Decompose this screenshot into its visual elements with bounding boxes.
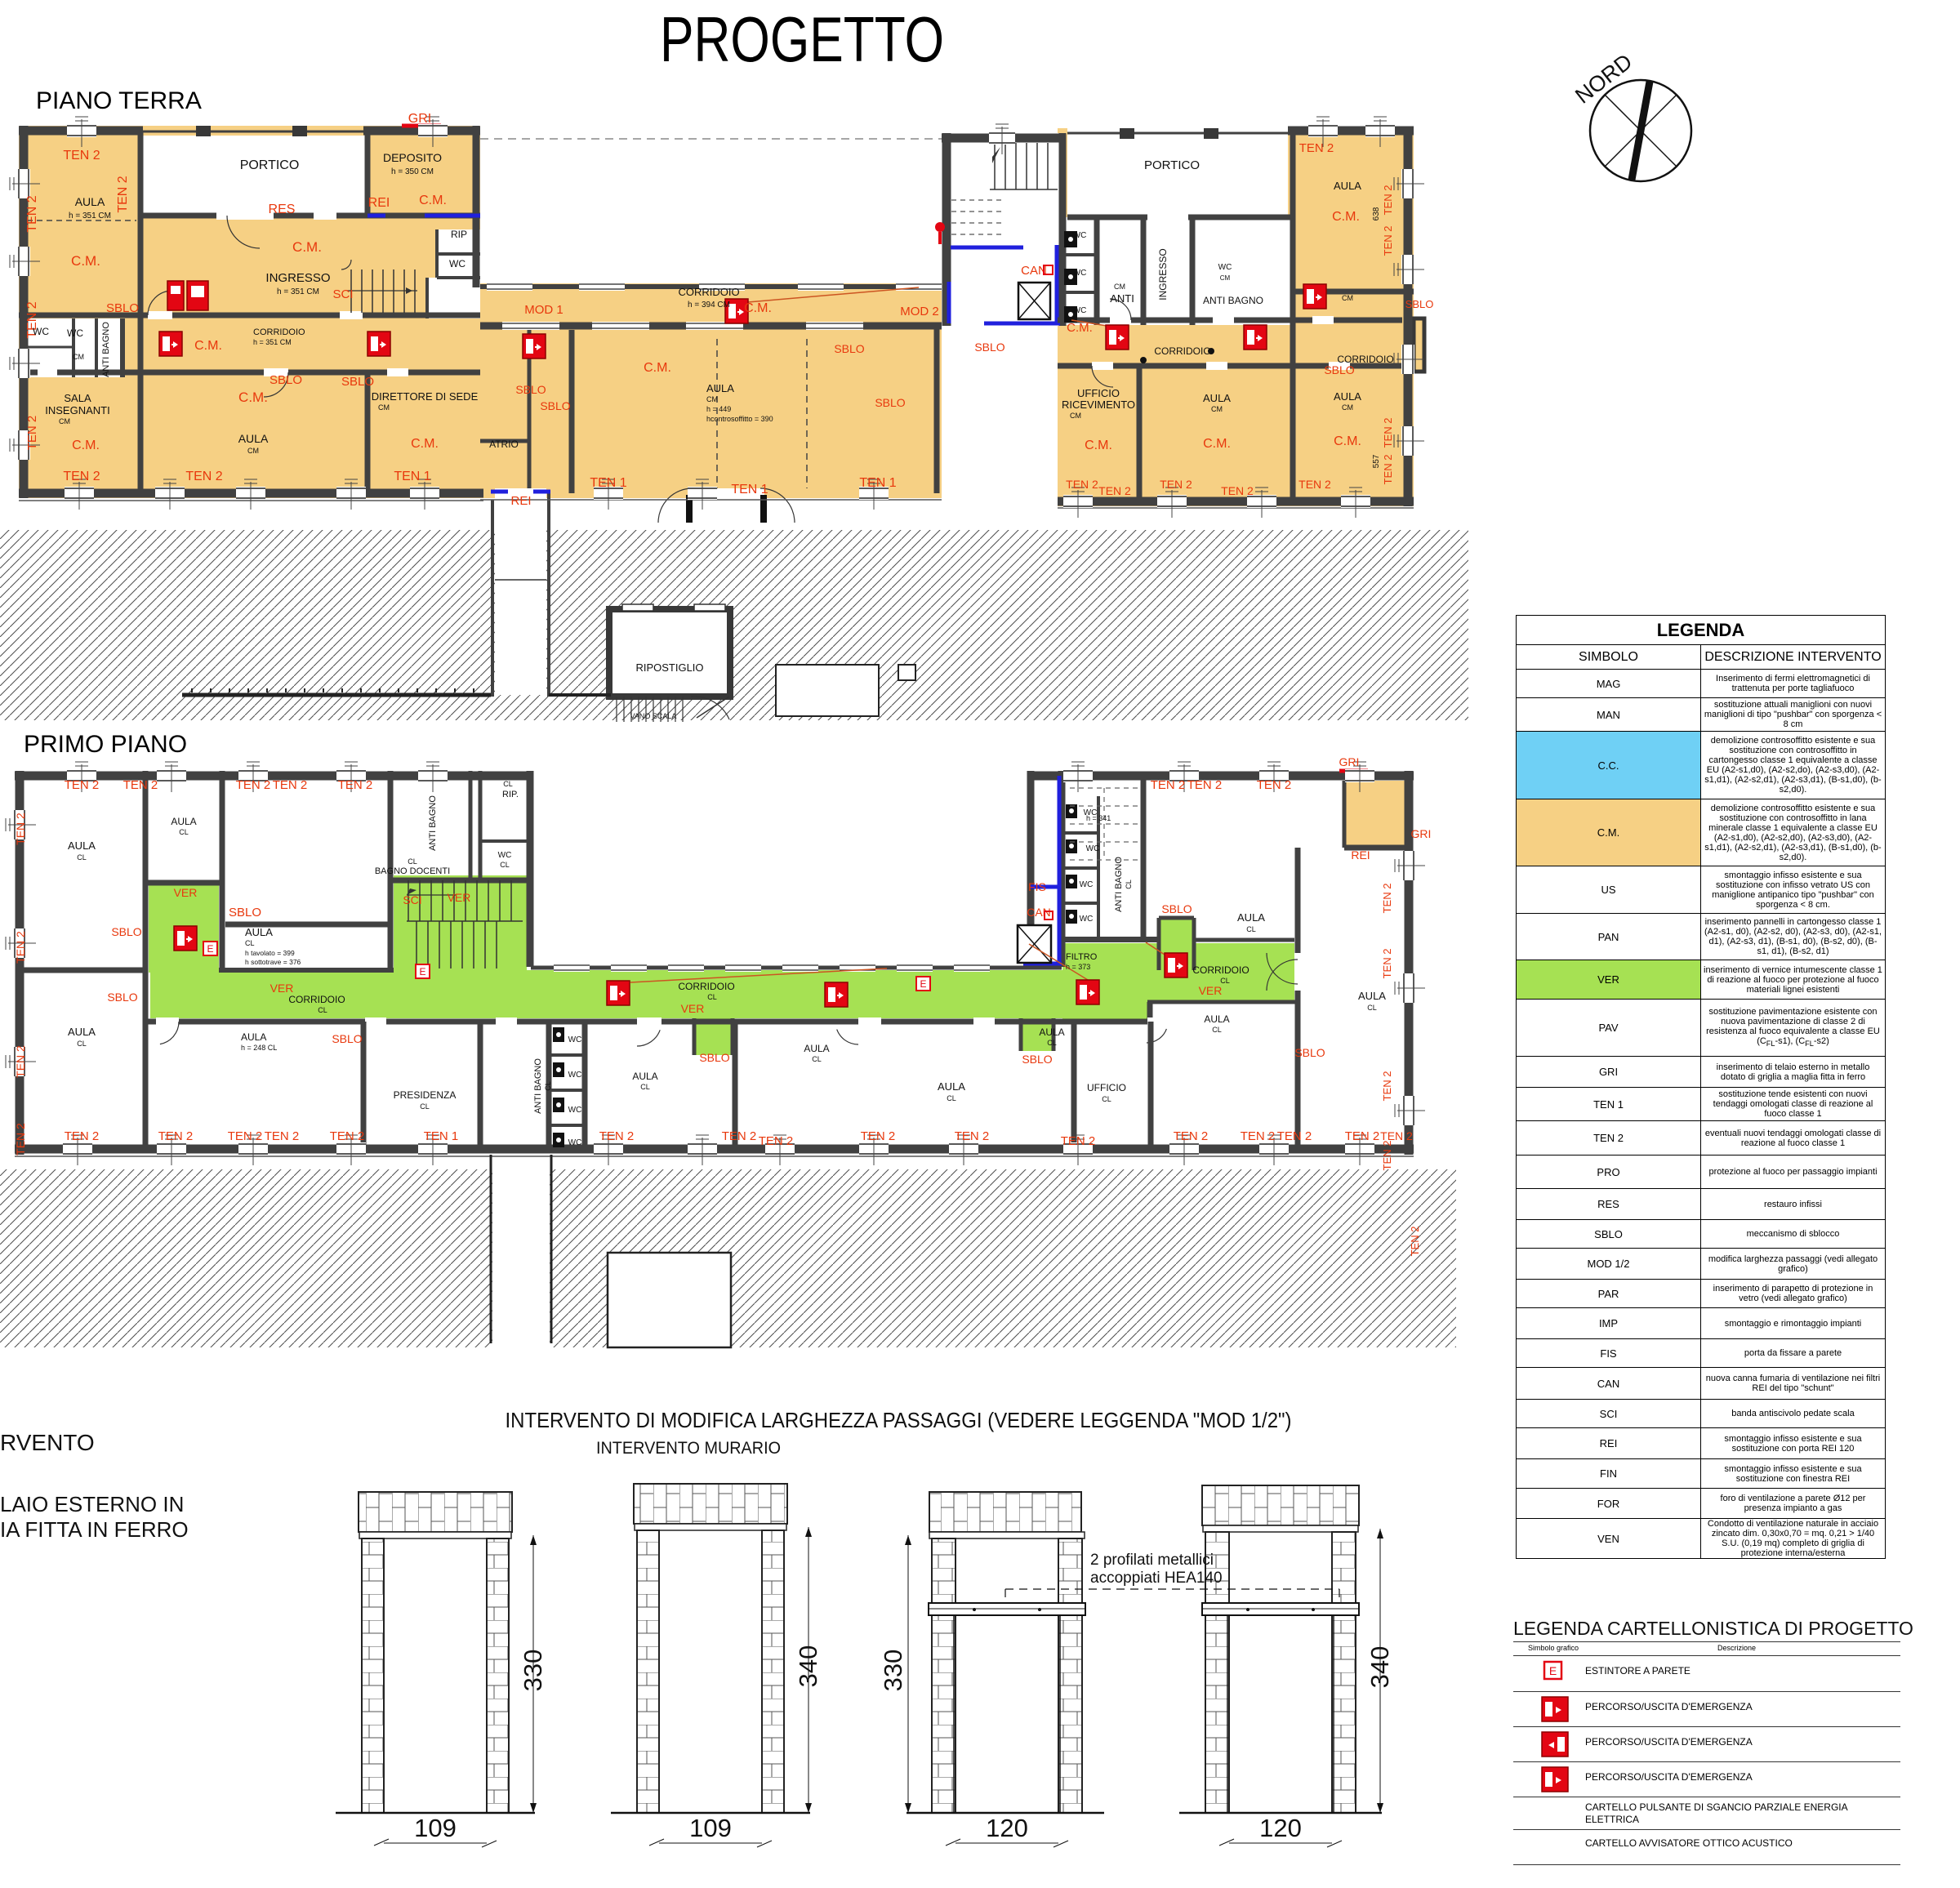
svg-text:h = 351 CM: h = 351 CM xyxy=(277,287,319,296)
svg-text:INTERVENTO DI MODIFICA LARGHEZ: INTERVENTO DI MODIFICA LARGHEZZA PASSAGG… xyxy=(506,1408,1292,1432)
svg-text:GRI: GRI xyxy=(1339,755,1360,768)
svg-text:SBLO: SBLO xyxy=(1294,1046,1325,1059)
svg-text:WC: WC xyxy=(1218,263,1232,272)
svg-text:AULA: AULA xyxy=(241,1031,266,1043)
svg-text:WC: WC xyxy=(1084,808,1098,817)
svg-text:WC: WC xyxy=(67,327,83,339)
svg-text:C.M.: C.M. xyxy=(1203,437,1231,451)
svg-text:340: 340 xyxy=(794,1645,822,1688)
svg-text:CL: CL xyxy=(1246,925,1256,933)
svg-text:CL: CL xyxy=(408,857,417,866)
svg-text:SBLO: SBLO xyxy=(107,991,137,1004)
svg-text:CL: CL xyxy=(947,1094,956,1102)
svg-text:VER: VER xyxy=(448,891,471,904)
svg-text:SBLO: SBLO xyxy=(106,301,139,315)
svg-text:TEN 2: TEN 2 xyxy=(14,1045,27,1078)
svg-text:120: 120 xyxy=(1259,1814,1302,1842)
svg-text:CM: CM xyxy=(1342,294,1353,302)
svg-text:TEN 2: TEN 2 xyxy=(1382,455,1394,485)
svg-text:RES: RES xyxy=(269,203,296,216)
svg-text:AULA: AULA xyxy=(171,816,196,827)
svg-text:638: 638 xyxy=(1372,207,1381,220)
svg-text:WC: WC xyxy=(449,258,465,269)
svg-text:SBLO: SBLO xyxy=(699,1051,729,1064)
svg-text:WC: WC xyxy=(568,1138,582,1147)
svg-text:CL: CL xyxy=(1102,1095,1111,1103)
svg-text:RICEVIMENTO: RICEVIMENTO xyxy=(1062,399,1135,411)
svg-text:UFFICIO: UFFICIO xyxy=(1087,1082,1126,1093)
svg-text:330: 330 xyxy=(519,1650,547,1692)
svg-text:TEN 1: TEN 1 xyxy=(731,483,768,496)
svg-text:VER: VER xyxy=(174,886,198,899)
svg-text:ANTI BAGNO: ANTI BAGNO xyxy=(428,795,438,851)
svg-text:CL: CL xyxy=(544,1081,552,1091)
svg-text:TEN 2: TEN 2 xyxy=(759,1134,794,1148)
svg-text:TEN 2: TEN 2 xyxy=(1098,484,1131,497)
svg-text:GRI: GRI xyxy=(1411,827,1432,840)
svg-text:AULA: AULA xyxy=(706,382,734,394)
svg-text:340: 340 xyxy=(1365,1646,1394,1689)
svg-text:CORRIDOIO: CORRIDOIO xyxy=(288,994,345,1005)
svg-text:ANTI BAGNO: ANTI BAGNO xyxy=(1114,857,1124,912)
svg-text:SBLO: SBLO xyxy=(540,399,570,412)
svg-text:CL: CL xyxy=(1367,1004,1377,1012)
svg-text:TEN 2: TEN 2 xyxy=(63,470,100,483)
svg-text:C.M.: C.M. xyxy=(238,390,268,405)
svg-text:TEN 2: TEN 2 xyxy=(1380,1129,1413,1142)
svg-text:TEN 2: TEN 2 xyxy=(1298,478,1331,491)
svg-text:SBLO: SBLO xyxy=(1324,363,1354,376)
svg-text:TEN 2: TEN 2 xyxy=(1382,418,1394,448)
svg-text:SBLO: SBLO xyxy=(974,341,1004,354)
svg-text:CL: CL xyxy=(245,939,255,947)
svg-text:TEN 2: TEN 2 xyxy=(14,813,27,845)
svg-text:CM: CM xyxy=(1220,274,1231,282)
svg-text:SBLO: SBLO xyxy=(875,396,905,409)
svg-text:REI: REI xyxy=(368,196,390,210)
svg-text:TEN 2: TEN 2 xyxy=(1174,1129,1209,1143)
svg-text:CM: CM xyxy=(1114,283,1125,291)
svg-text:FIS: FIS xyxy=(1028,880,1046,893)
svg-text:WC: WC xyxy=(33,326,49,337)
svg-text:SBLO: SBLO xyxy=(269,373,302,387)
svg-text:TEN 2: TEN 2 xyxy=(265,1129,300,1143)
svg-text:h = 394 CM: h = 394 CM xyxy=(688,301,730,309)
svg-text:SBLO: SBLO xyxy=(332,1032,362,1045)
svg-text:AULA: AULA xyxy=(245,926,273,938)
svg-text:TEN 2: TEN 2 xyxy=(65,778,100,792)
svg-text:AULA: AULA xyxy=(1334,180,1361,192)
svg-text:CORRIDOIO: CORRIDOIO xyxy=(253,327,305,337)
svg-text:109: 109 xyxy=(689,1814,732,1842)
svg-text:RIP.: RIP. xyxy=(502,790,519,799)
svg-text:TEN 2: TEN 2 xyxy=(1381,1071,1393,1102)
svg-text:CORRIDOIO: CORRIDOIO xyxy=(1337,354,1393,365)
svg-text:TEN 1: TEN 1 xyxy=(859,476,896,490)
svg-text:TEN 2: TEN 2 xyxy=(1187,778,1223,792)
svg-text:SCI: SCI xyxy=(332,287,353,301)
svg-text:TEN 2: TEN 2 xyxy=(158,1129,194,1143)
svg-text:CM: CM xyxy=(706,395,718,403)
svg-text:AULA: AULA xyxy=(938,1080,965,1093)
svg-text:TEN 2: TEN 2 xyxy=(1381,949,1393,979)
svg-text:E: E xyxy=(419,966,425,977)
svg-text:CL: CL xyxy=(318,1006,327,1014)
svg-text:CL: CL xyxy=(420,1102,430,1111)
svg-text:GRI: GRI xyxy=(408,112,431,126)
svg-text:h = 351 CM: h = 351 CM xyxy=(69,212,111,220)
svg-text:AULA: AULA xyxy=(1203,392,1231,404)
svg-text:SBLO: SBLO xyxy=(1161,902,1192,915)
svg-text:TEN 2: TEN 2 xyxy=(63,149,100,163)
svg-text:hcontrosoffitto = 390: hcontrosoffitto = 390 xyxy=(706,415,773,423)
svg-text:IA FITTA IN FERRO: IA FITTA IN FERRO xyxy=(0,1517,189,1542)
svg-text:TEN 2: TEN 2 xyxy=(1299,141,1334,155)
svg-text:UFFICIO: UFFICIO xyxy=(1077,387,1120,399)
svg-text:TEN 2: TEN 2 xyxy=(273,778,308,792)
svg-text:TEN 2: TEN 2 xyxy=(1345,1129,1380,1143)
svg-text:TEN 2: TEN 2 xyxy=(116,176,130,212)
svg-text:h sottotrave = 376: h sottotrave = 376 xyxy=(245,958,301,966)
svg-text:AULA: AULA xyxy=(804,1043,829,1054)
svg-text:CL: CL xyxy=(1047,1039,1057,1047)
svg-text:AULA: AULA xyxy=(75,195,105,208)
svg-text:TEN 2: TEN 2 xyxy=(1277,1129,1312,1143)
svg-text:REI: REI xyxy=(510,494,531,508)
svg-text:CORRIDOIO: CORRIDOIO xyxy=(1192,964,1249,976)
svg-text:C.M.: C.M. xyxy=(1332,210,1360,224)
svg-text:AULA: AULA xyxy=(1039,1026,1064,1038)
svg-text:CL: CL xyxy=(1212,1026,1222,1034)
svg-text:CL: CL xyxy=(503,780,513,788)
svg-text:WC: WC xyxy=(1073,231,1087,240)
svg-text:WC: WC xyxy=(1080,880,1094,889)
svg-text:C.M.: C.M. xyxy=(744,301,772,315)
svg-text:CORRIDOIO: CORRIDOIO xyxy=(678,286,739,298)
svg-text:C.M.: C.M. xyxy=(644,361,671,375)
svg-text:C.M.: C.M. xyxy=(411,437,439,451)
svg-text:E: E xyxy=(920,978,926,990)
svg-text:h = 248 CL: h = 248 CL xyxy=(241,1044,277,1052)
svg-text:ANTI BAGNO: ANTI BAGNO xyxy=(101,322,111,377)
svg-text:C.M.: C.M. xyxy=(72,439,100,452)
svg-text:INSEGNANTI: INSEGNANTI xyxy=(45,404,109,416)
svg-text:RVENTO: RVENTO xyxy=(0,1430,95,1455)
svg-text:TEN 1: TEN 1 xyxy=(424,1129,459,1143)
svg-text:AULA: AULA xyxy=(1358,990,1386,1002)
svg-text:TEN 2: TEN 2 xyxy=(1381,884,1393,914)
svg-text:WC: WC xyxy=(568,1071,582,1080)
svg-text:TEN 2: TEN 2 xyxy=(1160,478,1192,491)
svg-text:TEN 2: TEN 2 xyxy=(1382,226,1394,256)
svg-text:CORRIDOIO: CORRIDOIO xyxy=(1154,345,1210,357)
svg-text:109: 109 xyxy=(414,1814,457,1842)
svg-text:TEN 2: TEN 2 xyxy=(1257,778,1292,792)
svg-text:INGRESSO: INGRESSO xyxy=(265,271,330,285)
svg-text:WC: WC xyxy=(568,1035,582,1044)
svg-text:CM: CM xyxy=(1342,403,1353,412)
svg-text:SBLO: SBLO xyxy=(515,383,546,396)
svg-text:PIANO TERRA: PIANO TERRA xyxy=(36,87,202,114)
svg-text:WC: WC xyxy=(498,851,512,860)
svg-text:C.M.: C.M. xyxy=(292,239,322,255)
svg-text:CL: CL xyxy=(640,1083,650,1091)
svg-text:VER: VER xyxy=(681,1002,705,1015)
svg-text:TEN 2: TEN 2 xyxy=(1241,1129,1276,1143)
svg-text:C.M.: C.M. xyxy=(1067,321,1093,335)
svg-text:CORRIDOIO: CORRIDOIO xyxy=(678,981,734,992)
svg-text:TEN 2: TEN 2 xyxy=(1066,478,1098,491)
svg-text:BAGNO DOCENTI: BAGNO DOCENTI xyxy=(375,866,450,876)
svg-text:CL: CL xyxy=(77,853,87,862)
svg-text:AULA: AULA xyxy=(632,1071,657,1082)
svg-text:CM: CM xyxy=(378,403,390,412)
svg-text:TEN 2: TEN 2 xyxy=(722,1129,757,1143)
svg-text:CL: CL xyxy=(812,1055,822,1063)
svg-text:TEN 2: TEN 2 xyxy=(236,778,271,792)
svg-text:AULA: AULA xyxy=(238,432,269,445)
svg-text:330: 330 xyxy=(879,1650,907,1692)
svg-text:WC: WC xyxy=(1073,269,1087,278)
svg-text:h tavolato = 399: h tavolato = 399 xyxy=(245,949,295,957)
svg-text:CL: CL xyxy=(707,993,717,1001)
svg-text:C.M.: C.M. xyxy=(1334,434,1361,448)
svg-text:SBLO: SBLO xyxy=(1405,298,1434,310)
svg-text:TEN 2: TEN 2 xyxy=(599,1129,635,1143)
svg-text:TEN 2: TEN 2 xyxy=(25,416,39,451)
svg-text:SBLO: SBLO xyxy=(111,925,141,938)
svg-text:AULA: AULA xyxy=(1334,390,1361,403)
svg-text:TEN 2: TEN 2 xyxy=(14,931,27,964)
svg-text:TEN 2: TEN 2 xyxy=(1382,185,1394,216)
svg-text:REI: REI xyxy=(1351,848,1370,862)
svg-text:MOD 1: MOD 1 xyxy=(524,303,563,317)
svg-text:h = 351 CM: h = 351 CM xyxy=(253,338,292,346)
svg-text:PRIMO PIANO: PRIMO PIANO xyxy=(24,731,187,758)
svg-text:WC: WC xyxy=(1080,915,1094,924)
svg-text:C.M.: C.M. xyxy=(1085,439,1112,452)
svg-text:TEN 2: TEN 2 xyxy=(185,470,222,483)
svg-text:WC: WC xyxy=(1073,306,1087,315)
svg-text:PROGETTO: PROGETTO xyxy=(660,3,944,75)
svg-text:SALA: SALA xyxy=(64,392,91,404)
svg-text:TEN 2: TEN 2 xyxy=(228,1129,263,1143)
svg-text:557: 557 xyxy=(1372,454,1381,468)
svg-text:120: 120 xyxy=(986,1814,1028,1842)
svg-text:SBLO: SBLO xyxy=(341,375,374,389)
svg-text:ANTI BAGNO: ANTI BAGNO xyxy=(1203,295,1263,306)
svg-text:TEN 2: TEN 2 xyxy=(1381,1141,1393,1171)
svg-text:DIRETTORE DI SEDE: DIRETTORE DI SEDE xyxy=(372,390,479,403)
svg-text:C.M.: C.M. xyxy=(419,194,447,207)
svg-text:SCI: SCI xyxy=(403,893,421,906)
svg-text:h = 449: h = 449 xyxy=(706,405,731,413)
svg-text:CM: CM xyxy=(247,447,259,455)
svg-text:C.M.: C.M. xyxy=(194,339,222,353)
svg-text:PRESIDENZA: PRESIDENZA xyxy=(394,1089,457,1101)
svg-text:ANTI BAGNO: ANTI BAGNO xyxy=(533,1058,543,1114)
svg-text:INGRESSO: INGRESSO xyxy=(1157,248,1169,300)
svg-text:h = 373: h = 373 xyxy=(1066,963,1090,971)
svg-text:CL: CL xyxy=(1125,879,1133,889)
svg-text:ATRIO: ATRIO xyxy=(489,439,519,450)
svg-text:INTERVENTO MURARIO: INTERVENTO MURARIO xyxy=(596,1439,781,1458)
svg-text:SBLO: SBLO xyxy=(834,342,864,355)
svg-text:AULA: AULA xyxy=(1237,911,1265,924)
svg-text:TEN 2: TEN 2 xyxy=(65,1129,100,1143)
svg-text:TEN 2: TEN 2 xyxy=(14,1123,27,1156)
svg-text:WC: WC xyxy=(568,1106,582,1115)
svg-text:TEN 2: TEN 2 xyxy=(955,1129,990,1143)
svg-text:CL: CL xyxy=(77,1040,87,1048)
svg-text:CM: CM xyxy=(59,417,70,425)
svg-text:RIP: RIP xyxy=(451,229,467,240)
svg-text:PORTICO: PORTICO xyxy=(240,158,300,172)
svg-text:TEN 2: TEN 2 xyxy=(1061,1134,1096,1148)
svg-text:h = 350 CM: h = 350 CM xyxy=(391,167,434,176)
svg-text:CL: CL xyxy=(500,861,510,869)
svg-text:TEN 2: TEN 2 xyxy=(123,778,158,792)
svg-text:FILTRO: FILTRO xyxy=(1066,952,1098,962)
svg-text:VER: VER xyxy=(270,982,294,995)
svg-text:AULA: AULA xyxy=(68,1026,96,1038)
svg-text:TEN 2: TEN 2 xyxy=(1409,1227,1421,1257)
svg-text:SBLO: SBLO xyxy=(1022,1053,1052,1066)
svg-text:C.M.: C.M. xyxy=(71,253,100,269)
svg-text:TEN 2: TEN 2 xyxy=(338,778,373,792)
svg-text:accoppiati HEA140: accoppiati HEA140 xyxy=(1090,1570,1223,1587)
svg-text:TEN 2: TEN 2 xyxy=(25,195,39,232)
svg-text:TEN 1: TEN 1 xyxy=(394,470,430,483)
svg-text:TEN 2: TEN 2 xyxy=(330,1129,365,1143)
svg-text:E: E xyxy=(207,943,213,955)
svg-text:SBLO: SBLO xyxy=(229,906,261,920)
svg-text:TEN 2: TEN 2 xyxy=(861,1129,896,1143)
svg-text:TEN 2: TEN 2 xyxy=(1221,484,1254,497)
svg-text:CM: CM xyxy=(1070,412,1081,420)
svg-text:ANTI: ANTI xyxy=(1110,292,1134,305)
svg-text:2 profilati metallici: 2 profilati metallici xyxy=(1090,1552,1214,1569)
svg-text:AULA: AULA xyxy=(1204,1013,1229,1025)
svg-text:AULA: AULA xyxy=(68,839,96,852)
svg-text:RIPOSTIGLIO: RIPOSTIGLIO xyxy=(635,661,703,674)
svg-text:PORTICO: PORTICO xyxy=(1144,158,1200,172)
svg-text:WC: WC xyxy=(1086,844,1100,853)
svg-text:LAIO ESTERNO IN: LAIO ESTERNO IN xyxy=(0,1492,184,1516)
svg-text:TEN 2: TEN 2 xyxy=(1151,778,1186,792)
svg-text:VER: VER xyxy=(1199,984,1223,997)
svg-text:CM: CM xyxy=(73,353,84,361)
svg-text:DEPOSITO: DEPOSITO xyxy=(383,151,442,164)
svg-text:MOD 2: MOD 2 xyxy=(900,305,939,318)
svg-text:CM: CM xyxy=(1211,405,1223,413)
svg-text:CL: CL xyxy=(179,828,189,836)
svg-text:TEN 1: TEN 1 xyxy=(590,476,626,490)
